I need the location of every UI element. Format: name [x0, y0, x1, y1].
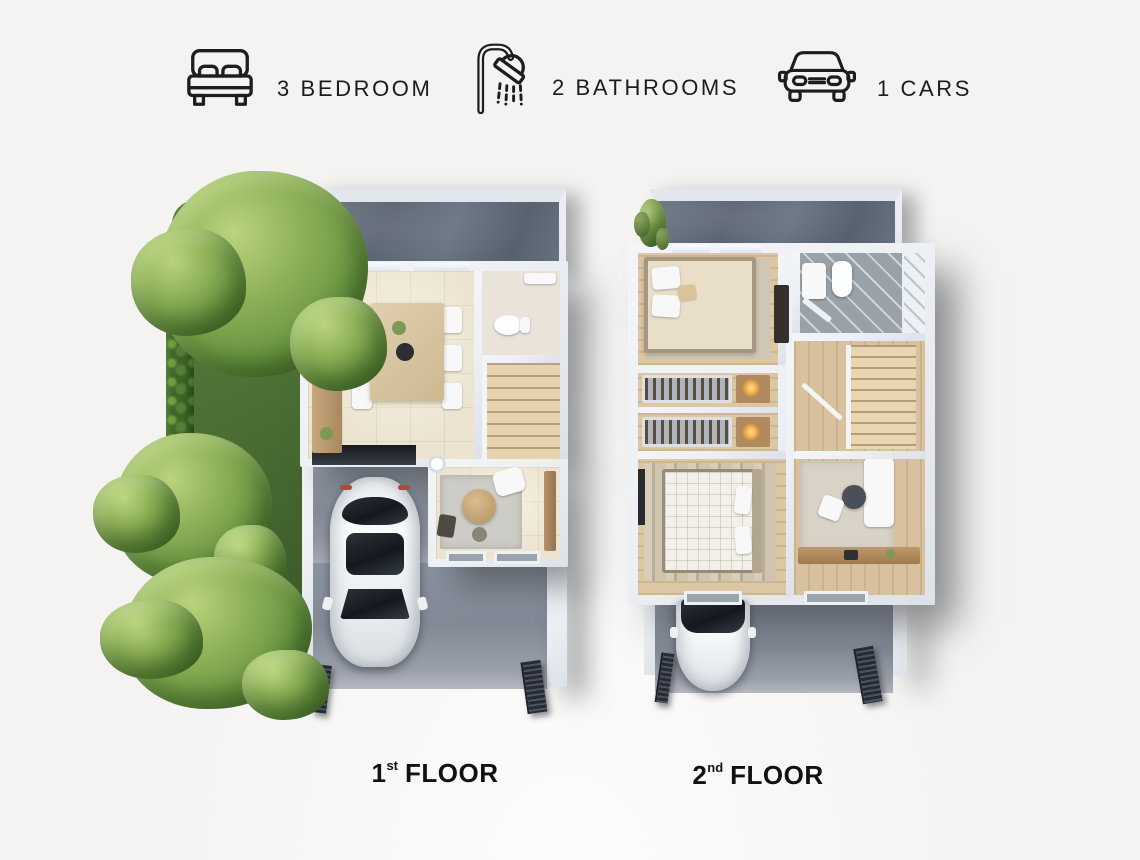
- pillow: [651, 266, 681, 290]
- dining-chair: [442, 383, 462, 409]
- staircase-first-floor: [482, 363, 560, 459]
- plan-second-floor: [628, 185, 940, 715]
- interior-wall: [794, 451, 925, 459]
- master-bed: [662, 469, 762, 573]
- accent-cushion: [677, 284, 697, 301]
- feature-bathrooms-label: 2 BATHROOMS: [552, 75, 739, 101]
- interior-wall: [792, 253, 800, 341]
- pillow: [734, 525, 752, 554]
- window-well: [804, 591, 868, 605]
- driveway-right-wall: [547, 565, 567, 687]
- office-chair: [842, 485, 866, 509]
- living-room: [436, 467, 560, 559]
- table-centerpiece: [396, 343, 414, 361]
- car-top-view: [330, 477, 420, 667]
- floor-word: FLOOR: [730, 760, 824, 790]
- toilet-tank: [520, 317, 530, 333]
- bedroom-one-bed: [644, 257, 756, 353]
- coffee-table: [462, 489, 496, 523]
- feature-cars-label: 1 CARS: [877, 76, 972, 102]
- car-mirror: [322, 596, 334, 611]
- living-window-well: [494, 551, 540, 564]
- car-rear-window: [342, 497, 408, 525]
- first-floor-label: 1stFLOOR: [335, 758, 535, 789]
- floor-number: 1: [371, 758, 386, 788]
- bed-icon: [183, 44, 257, 110]
- interior-wall: [474, 271, 482, 459]
- accent-chair: [436, 514, 456, 538]
- headboard: [752, 469, 762, 573]
- walk-in-closet: [638, 373, 778, 451]
- car-icon: [777, 48, 857, 106]
- shower-screen: [802, 297, 832, 323]
- terrace-foliage: [638, 199, 666, 247]
- driveway-left-wall: [644, 603, 655, 675]
- interior-wall: [638, 407, 778, 413]
- interior-wall: [786, 341, 794, 597]
- floor-word: FLOOR: [405, 758, 499, 788]
- floor-lamp: [428, 455, 446, 473]
- driveway-right-wall: [893, 603, 907, 675]
- stair-hall: [794, 341, 925, 453]
- tv-panel: [638, 469, 645, 525]
- window-well: [684, 591, 742, 605]
- bathroom-second-floor: [800, 253, 902, 333]
- feature-bedrooms: 3 BEDROOM: [183, 44, 432, 110]
- car-taillight: [398, 485, 410, 490]
- car-windshield: [340, 589, 410, 619]
- tree-top: [158, 171, 368, 377]
- bedroom-one-window: [720, 245, 762, 253]
- second-floor-label: 2ndFLOOR: [658, 760, 858, 791]
- pillow: [651, 294, 680, 318]
- car-mirror: [748, 627, 756, 638]
- kitchen-plant: [320, 427, 333, 440]
- floor-number: 2: [692, 760, 707, 790]
- toilet: [494, 315, 522, 335]
- tv-console: [544, 471, 556, 551]
- floor-ordinal: st: [386, 758, 398, 773]
- clothes-rack: [642, 417, 732, 447]
- desk-plant: [886, 549, 895, 558]
- living-window-well: [446, 551, 486, 564]
- feature-bathrooms: 2 BATHROOMS: [472, 38, 739, 114]
- dining-chair: [442, 307, 462, 333]
- office-desk: [798, 547, 920, 564]
- shower-stall: [904, 253, 925, 333]
- clothes-rack: [642, 375, 732, 403]
- sofa: [864, 457, 894, 527]
- car-front-top-view: [676, 599, 750, 691]
- laptop: [844, 550, 858, 560]
- master-bedroom: [638, 459, 786, 595]
- interior-wall: [638, 451, 786, 459]
- bathroom-first-floor: [482, 271, 560, 355]
- shower-icon: [472, 38, 532, 114]
- car-sunroof: [346, 533, 404, 575]
- plan-first-floor: [130, 185, 570, 715]
- staircase-second-floor: [846, 345, 916, 449]
- tall-cabinet: [774, 285, 789, 343]
- interior-wall: [482, 355, 560, 363]
- bedroom-one: [638, 253, 778, 365]
- terrace-second-floor: [650, 189, 902, 251]
- office-room: [794, 459, 925, 595]
- interior-wall: [792, 333, 925, 341]
- car-mirror: [670, 627, 678, 638]
- side-stool: [472, 527, 487, 542]
- bedroom-one-window: [672, 245, 710, 253]
- pillow: [734, 485, 753, 515]
- bathroom-sink: [524, 273, 556, 284]
- dining-chair: [442, 345, 462, 371]
- desk-lamp-glow: [742, 379, 760, 397]
- toilet: [832, 261, 852, 297]
- table-plant: [392, 321, 406, 335]
- car-taillight: [340, 485, 352, 490]
- feature-bedrooms-label: 3 BEDROOM: [277, 76, 432, 102]
- tree-bottom: [124, 557, 312, 709]
- desk-lamp-glow: [742, 423, 760, 441]
- dining-window: [414, 263, 470, 271]
- floor-ordinal: nd: [707, 760, 723, 775]
- bathroom-vanity: [802, 263, 826, 299]
- feature-cars: 1 CARS: [777, 48, 972, 106]
- stair-banister: [801, 382, 843, 421]
- floorplan-page: { "features": { "items": [ { "icon": "be…: [0, 0, 1140, 860]
